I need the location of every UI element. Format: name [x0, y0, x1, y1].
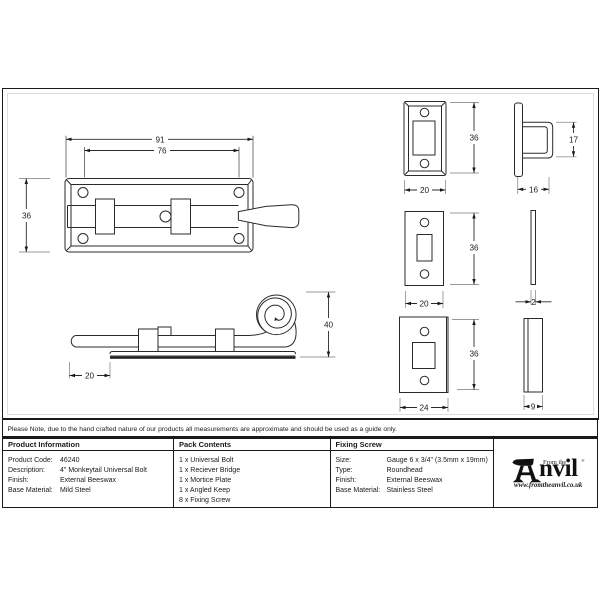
- svg-text:76: 76: [157, 147, 167, 156]
- svg-text:20: 20: [85, 372, 95, 381]
- svg-text:20: 20: [419, 300, 429, 309]
- svg-text:36: 36: [469, 350, 479, 359]
- svg-text:91: 91: [155, 135, 165, 144]
- svg-text:24: 24: [419, 404, 429, 413]
- svg-text:16: 16: [529, 185, 539, 194]
- svg-text:36: 36: [469, 244, 479, 253]
- svg-text:9: 9: [531, 403, 536, 412]
- svg-text:36: 36: [22, 212, 32, 221]
- svg-text:36: 36: [469, 134, 479, 143]
- svg-text:40: 40: [324, 321, 334, 330]
- svg-text:17: 17: [569, 136, 579, 145]
- svg-text:2: 2: [531, 298, 536, 307]
- svg-text:20: 20: [420, 186, 430, 195]
